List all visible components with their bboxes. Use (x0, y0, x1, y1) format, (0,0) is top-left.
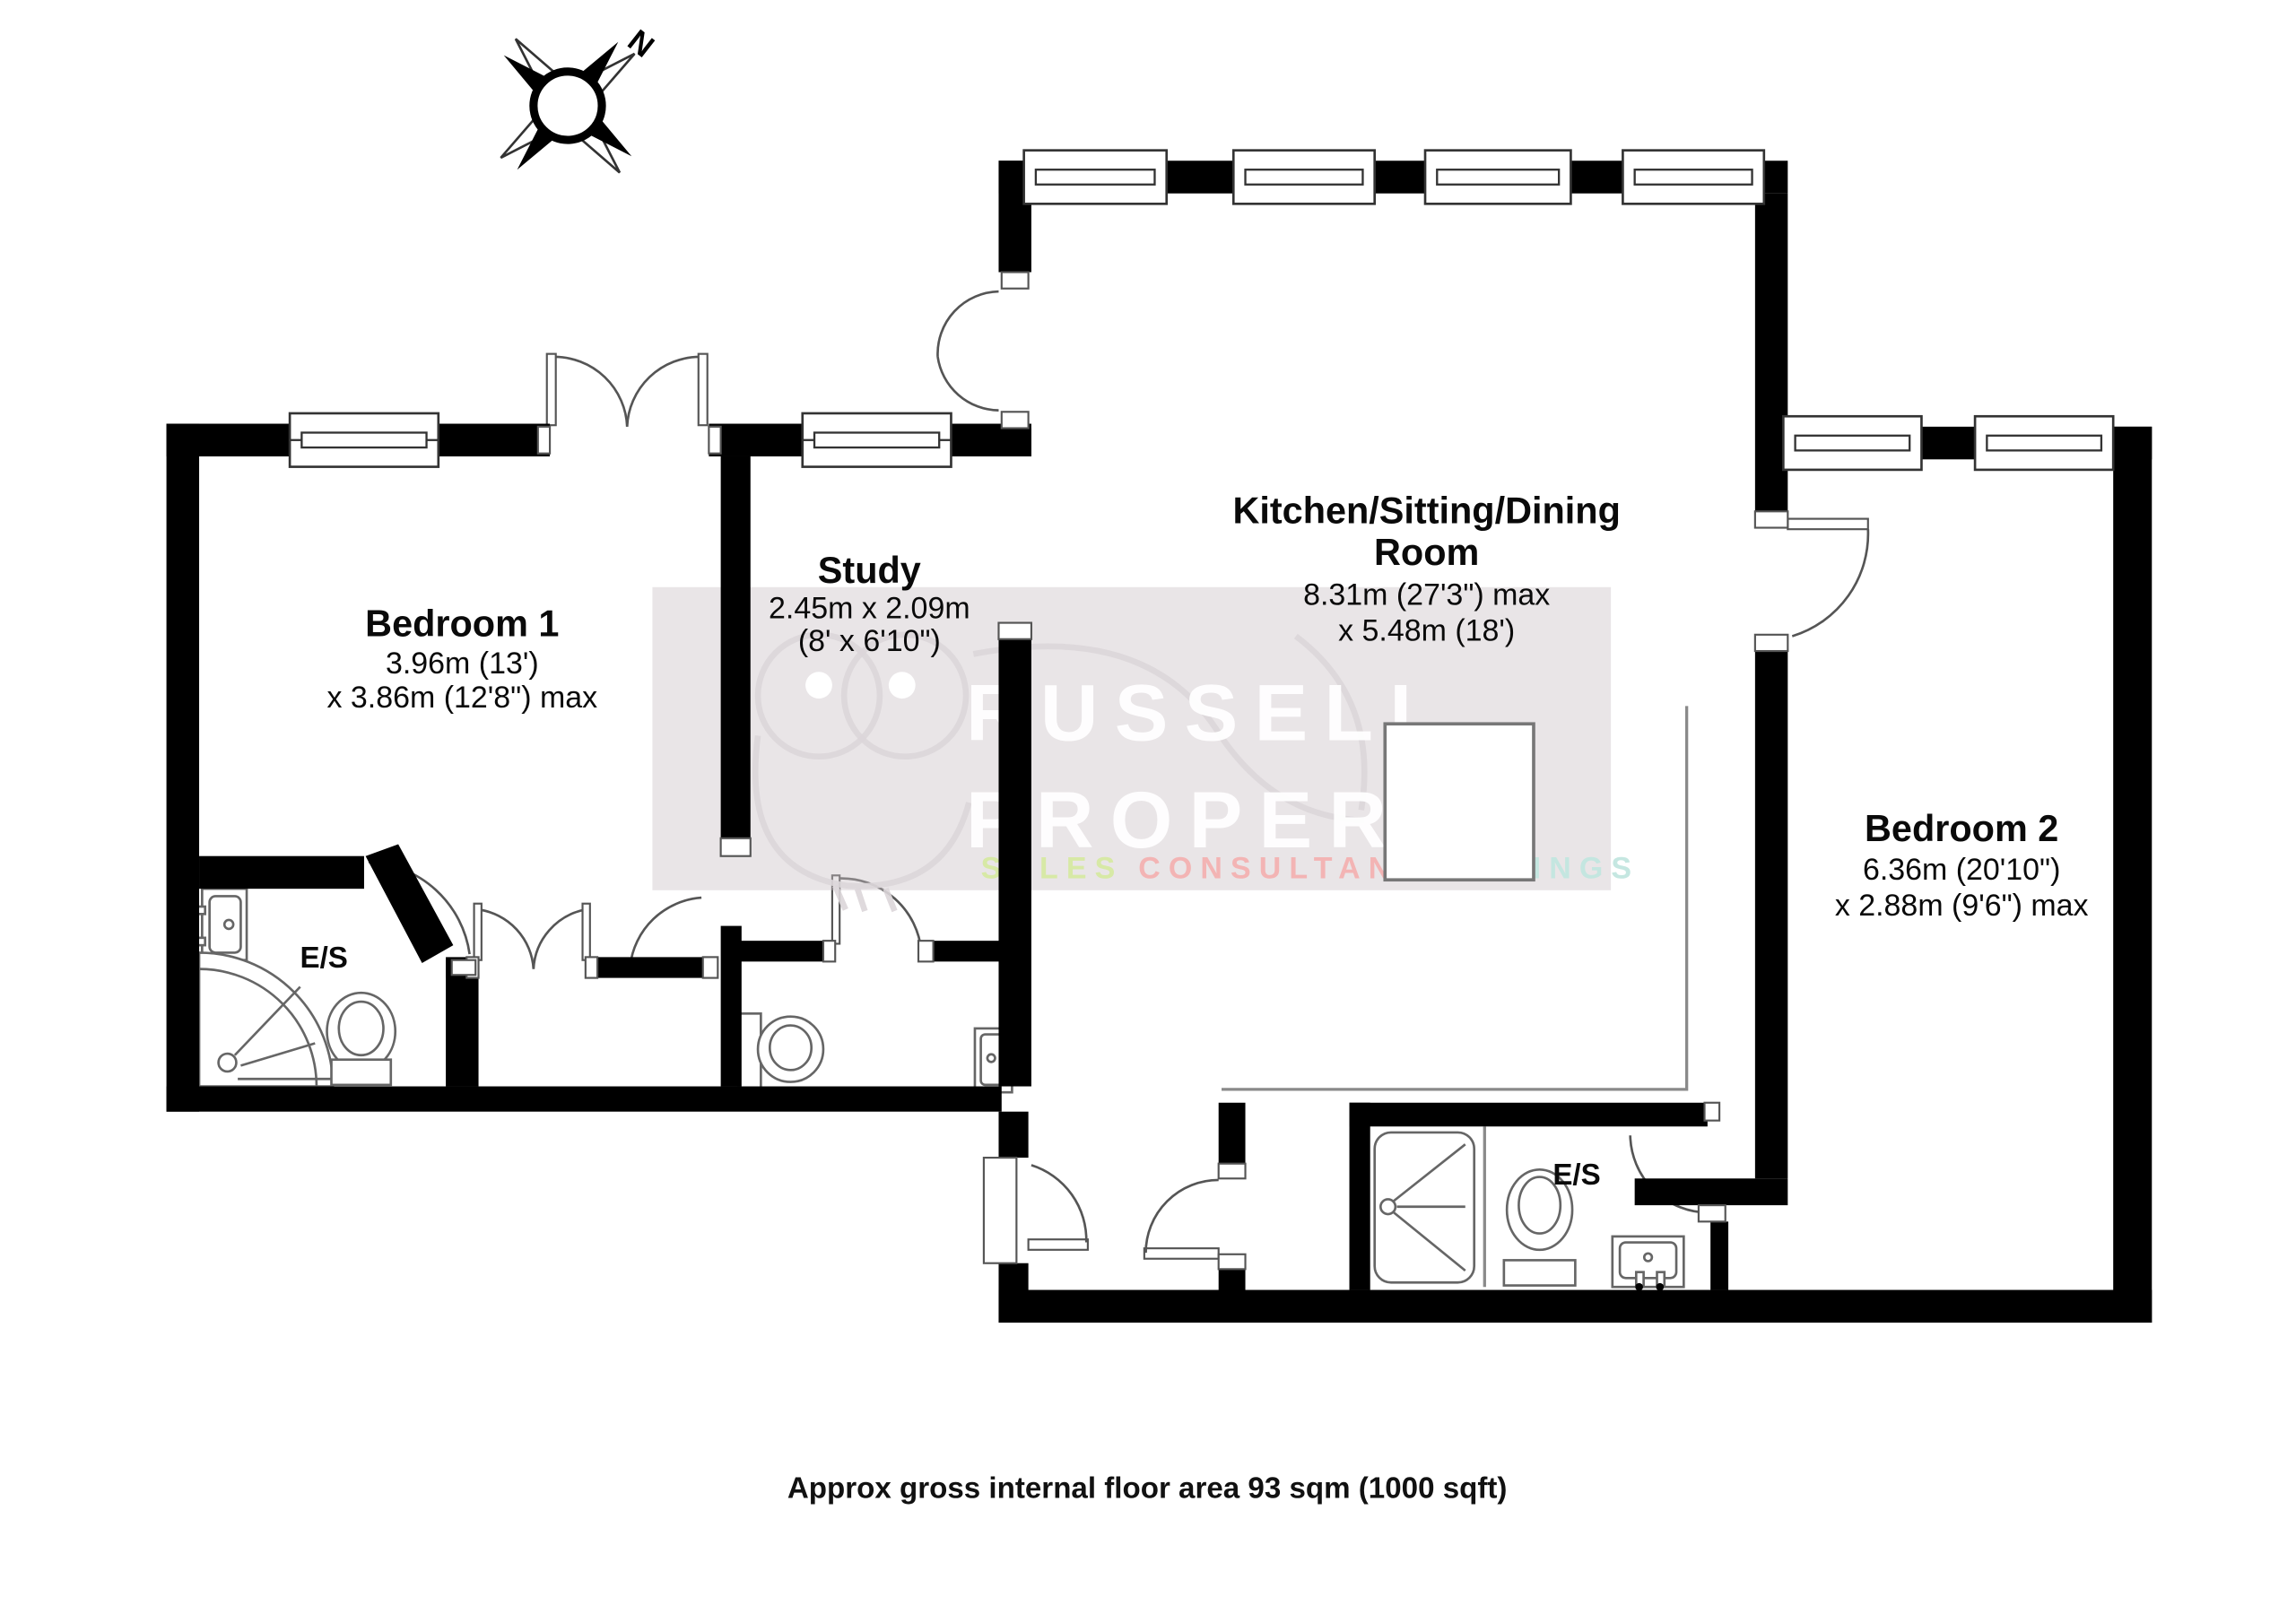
compass-circle (534, 72, 602, 140)
floor-area-caption: Approx gross internal floor area 93 sqm … (787, 1472, 1508, 1506)
bedroom1-label: Bedroom 1 (365, 603, 559, 644)
entrance-door-frame (984, 1158, 1016, 1263)
window (290, 413, 439, 467)
window (1783, 416, 1921, 470)
door-leaf (699, 354, 708, 426)
kitchen-label-line2: Room (1374, 532, 1479, 573)
tap-dot (1635, 1283, 1643, 1291)
door-leaf (474, 904, 482, 960)
floorplan: RUSSELL PROPERTY SALES CONSULTANCY LETTI… (0, 0, 2296, 1623)
window (1975, 416, 2113, 470)
door-leaf (1029, 1239, 1088, 1250)
study-label: Study (818, 550, 921, 591)
window (803, 413, 952, 467)
kitchen-label-line1: Kitchen/Sitting/Dining (1232, 490, 1620, 532)
watermark-line1: RUSSELL (966, 667, 1455, 757)
kitchen-dim-metric: 8.31m (27'3") max (1303, 578, 1550, 612)
ensuite1-label: E/S (300, 942, 348, 975)
bedroom1-dim-metric: 3.96m (13') (386, 647, 539, 681)
toilet-icon (327, 993, 396, 1070)
door-leaf (1787, 519, 1867, 530)
bedroom2-label: Bedroom 2 (1865, 808, 2058, 849)
bedroom1-dim-imperial: x 3.86m (12'8") max (327, 681, 598, 715)
window (1233, 151, 1374, 204)
tap-dot (1657, 1283, 1665, 1291)
toilet-tank (332, 1060, 391, 1085)
window (1622, 151, 1763, 204)
door-leaf (1144, 1248, 1219, 1259)
door-leaf (547, 354, 556, 426)
bedroom2-dim-imperial: x 2.88m (9'6") max (1835, 889, 2089, 923)
window (1425, 151, 1570, 204)
door-leaf (583, 904, 590, 960)
kitchen-dim-imperial: x 5.48m (18') (1338, 613, 1515, 647)
kitchen-island (1385, 724, 1534, 880)
window (1024, 151, 1167, 204)
study-dim-imperial: (8' x 6'10") (798, 624, 941, 658)
toilet-tank (1504, 1260, 1576, 1285)
ensuite2-label: E/S (1552, 1159, 1600, 1192)
study-dim-metric: 2.45m x 2.09m (769, 592, 970, 626)
bedroom2-dim-metric: 6.36m (20'10") (1863, 853, 2060, 887)
